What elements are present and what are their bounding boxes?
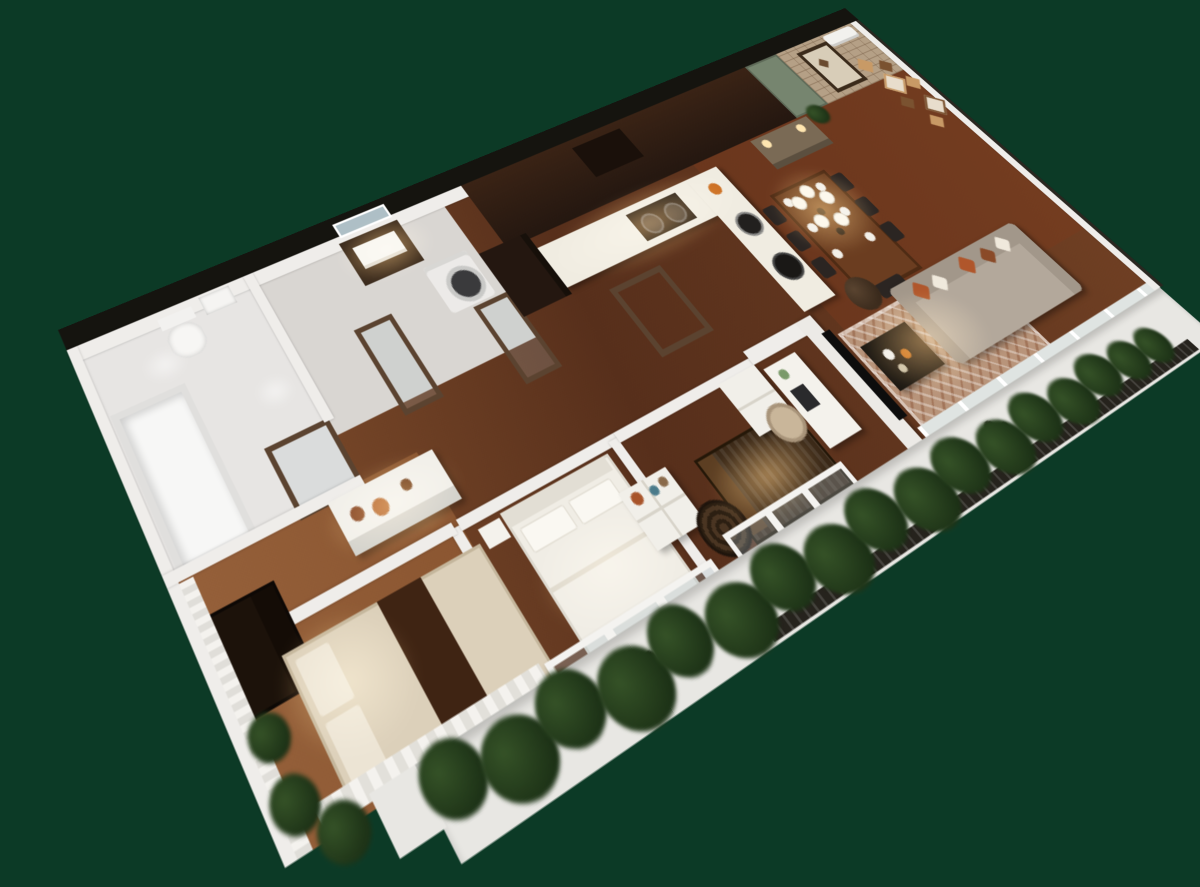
art-diamond <box>930 115 945 128</box>
art-diamond <box>901 96 915 109</box>
art-diamond <box>884 73 907 94</box>
art-diamond <box>906 76 921 89</box>
art-diamond <box>879 60 893 72</box>
apartment-plan-plane <box>58 8 1200 887</box>
art-diamond <box>924 95 947 115</box>
art-diamond <box>858 59 874 73</box>
floorplan-render <box>0 0 1200 887</box>
